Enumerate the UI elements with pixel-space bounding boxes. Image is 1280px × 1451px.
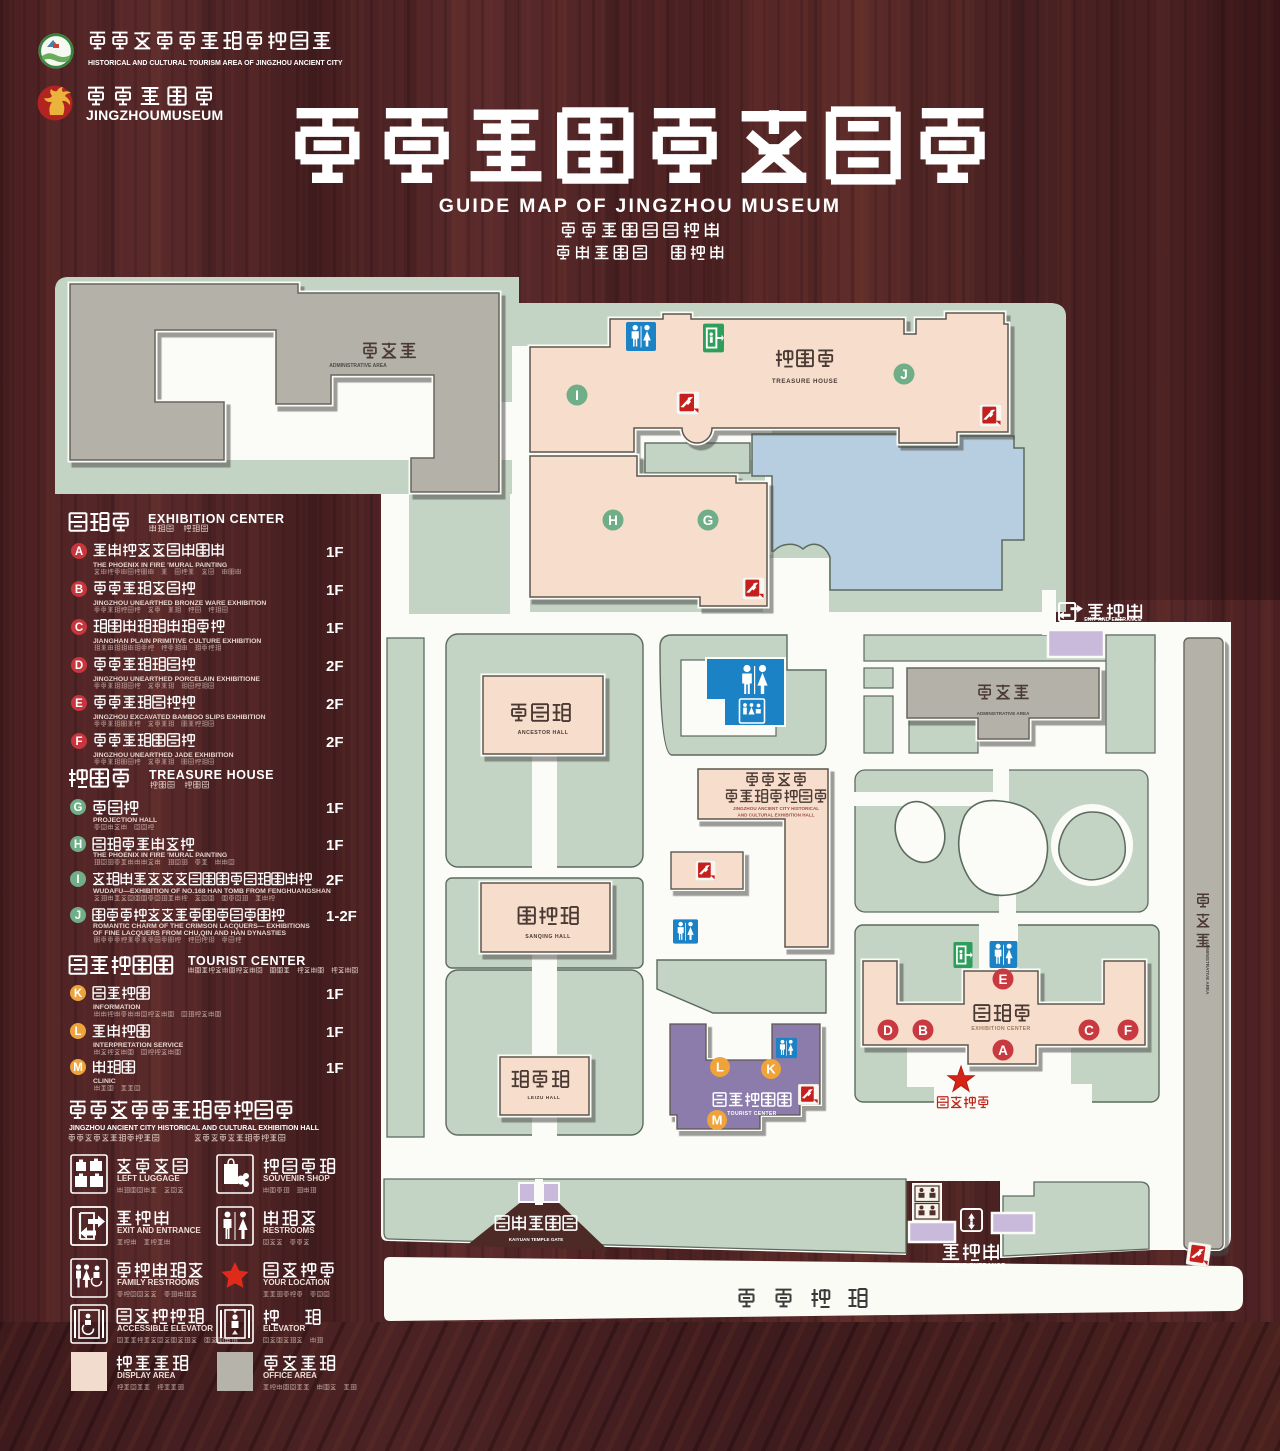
svg-text:2F: 2F [326,696,344,713]
svg-text:B: B [918,1023,928,1038]
svg-text:L: L [716,1060,724,1075]
svg-text:INFORMATION: INFORMATION [93,1004,141,1011]
svg-text:WUDAFU—EXHIBITION OF NO.168 HA: WUDAFU—EXHIBITION OF NO.168 HAN TOMB FRO… [93,888,331,895]
svg-text:THE PHOENIX IN FIRE ’MURAL PAI: THE PHOENIX IN FIRE ’MURAL PAINTING [93,562,227,569]
svg-text:YOUR LOCATION: YOUR LOCATION [263,1278,330,1287]
svg-text:H: H [74,839,82,851]
svg-text:TOURIST CENTER: TOURIST CENTER [727,1111,776,1117]
svg-text:TOURIST CENTER: TOURIST CENTER [188,954,306,968]
svg-text:KAIYUAN TEMPLE GATE: KAIYUAN TEMPLE GATE [509,1237,564,1242]
svg-text:1F: 1F [326,1024,344,1041]
svg-text:GUIDE MAP OF JINGZHOU MUSEUM: GUIDE MAP OF JINGZHOU MUSEUM [439,195,842,217]
svg-text:ADMINISTRATIVE AREA: ADMINISTRATIVE AREA [977,711,1031,716]
svg-text:JIANGHAN PLAIN PRIMITIVE CULTU: JIANGHAN PLAIN PRIMITIVE CULTURE EXHIBIT… [93,638,261,645]
svg-text:TREASURE HOUSE: TREASURE HOUSE [772,378,838,385]
svg-text:1-2F: 1-2F [326,908,357,925]
svg-text:1F: 1F [326,582,344,599]
svg-text:K: K [766,1062,776,1077]
svg-text:LEFT LUGGAGE: LEFT LUGGAGE [117,1174,180,1183]
svg-text:A: A [998,1043,1008,1058]
svg-text:D: D [75,660,83,672]
svg-text:F: F [1124,1023,1132,1038]
svg-text:A: A [75,546,83,558]
svg-text:EXHIBITION CENTER: EXHIBITION CENTER [971,1026,1030,1032]
svg-text:EXIT AND ENTRANCE: EXIT AND ENTRANCE [117,1226,201,1235]
svg-text:1F: 1F [326,1060,344,1077]
svg-text:1F: 1F [326,837,344,854]
svg-text:THE PHOENIX IN FIRE ’MURAL PAI: THE PHOENIX IN FIRE ’MURAL PAINTING [93,852,227,859]
svg-text:1F: 1F [326,620,344,637]
svg-text:LEIZU HALL: LEIZU HALL [528,1095,561,1101]
svg-text:DISPLAY AREA: DISPLAY AREA [117,1371,176,1380]
svg-text:I: I [76,874,79,886]
svg-text:D: D [883,1023,893,1038]
svg-text:E: E [998,972,1007,987]
svg-text:1F: 1F [326,986,344,1003]
svg-text:M: M [712,1113,723,1128]
svg-text:JINGZHOU UNEARTHED BRONZE WARE: JINGZHOU UNEARTHED BRONZE WARE EXHIBITIO… [93,600,266,607]
svg-text:JINGZHOUMUSEUM: JINGZHOUMUSEUM [86,107,223,123]
svg-text:AND CULTURAL EXHIBITION HALL: AND CULTURAL EXHIBITION HALL [738,813,815,818]
svg-text:JINGZHOU ANCIENT CITY HISTORIC: JINGZHOU ANCIENT CITY HISTORICAL AND CUL… [69,1125,320,1132]
svg-text:HISTORICAL AND CULTURAL TOURIS: HISTORICAL AND CULTURAL TOURISM AREA OF … [88,60,343,67]
svg-text:C: C [75,622,83,634]
svg-text:INTERPRETATION SERVICE: INTERPRETATION SERVICE [93,1042,184,1049]
svg-text:F: F [75,736,82,748]
svg-text:M: M [73,1062,83,1074]
svg-text:L: L [74,1026,81,1038]
svg-text:C: C [1084,1023,1094,1038]
svg-text:ACCESSIBLE ELEVATOR: ACCESSIBLE ELEVATOR [117,1324,213,1333]
svg-text:ROMANTIC CHARM OF THE CRIMSON: ROMANTIC CHARM OF THE CRIMSON LACQUERS— … [93,923,310,930]
svg-text:SANQING HALL: SANQING HALL [525,934,571,940]
svg-text:ANCESTOR HALL: ANCESTOR HALL [518,730,569,736]
svg-text:EXHIBITION CENTER: EXHIBITION CENTER [148,512,285,526]
svg-text:OFFICE AREA: OFFICE AREA [263,1371,317,1380]
svg-text:EXIT AND ENTRANCE: EXIT AND ENTRANCE [936,1263,1005,1269]
svg-text:JINGZHOU ANCIENT CITY HISTORIC: JINGZHOU ANCIENT CITY HISTORICAL [733,806,819,811]
svg-text:G: G [703,513,714,528]
svg-text:RESTROOMS: RESTROOMS [263,1226,315,1235]
svg-text:JINGZHOU EXCAVATED BAMBOO SLIP: JINGZHOU EXCAVATED BAMBOO SLIPS EXHIBITI… [93,714,266,721]
svg-text:1F: 1F [326,800,344,817]
svg-text:FAMILY RESTROOMS: FAMILY RESTROOMS [117,1278,200,1287]
svg-text:H: H [608,513,618,528]
svg-text:JINGZHOU UNEARTHED PORCELAIN E: JINGZHOU UNEARTHED PORCELAIN EXHIBITIONE [93,676,260,683]
svg-text:I: I [575,388,579,403]
svg-text:PROJECTION HALL: PROJECTION HALL [93,817,157,824]
svg-text:OF FINE LACQUERS FROM CHU,QIN: OF FINE LACQUERS FROM CHU,QIN AND HAN DY… [93,930,287,937]
svg-text:TREASURE HOUSE: TREASURE HOUSE [149,768,274,782]
svg-text:1F: 1F [326,544,344,561]
svg-text:JINGZHOU UNEARTHED JADE EXHIBI: JINGZHOU UNEARTHED JADE EXHIBITION [93,752,234,759]
svg-text:J: J [900,367,908,382]
svg-text:SOUVENIR SHOP: SOUVENIR SHOP [263,1174,330,1183]
svg-text:K: K [74,988,83,1000]
svg-text:G: G [74,802,83,814]
svg-text:CLINIC: CLINIC [93,1078,116,1085]
svg-text:ADMINISTRATIVE AREA: ADMINISTRATIVE AREA [1205,942,1210,996]
svg-text:J: J [75,910,81,922]
svg-text:B: B [75,584,83,596]
svg-text:E: E [75,698,83,710]
svg-text:2F: 2F [326,658,344,675]
svg-text:2F: 2F [326,872,344,889]
svg-text:ELEVATOR: ELEVATOR [263,1324,305,1333]
svg-text:ADMINISTRATIVE AREA: ADMINISTRATIVE AREA [329,363,387,369]
svg-text:2F: 2F [326,734,344,751]
